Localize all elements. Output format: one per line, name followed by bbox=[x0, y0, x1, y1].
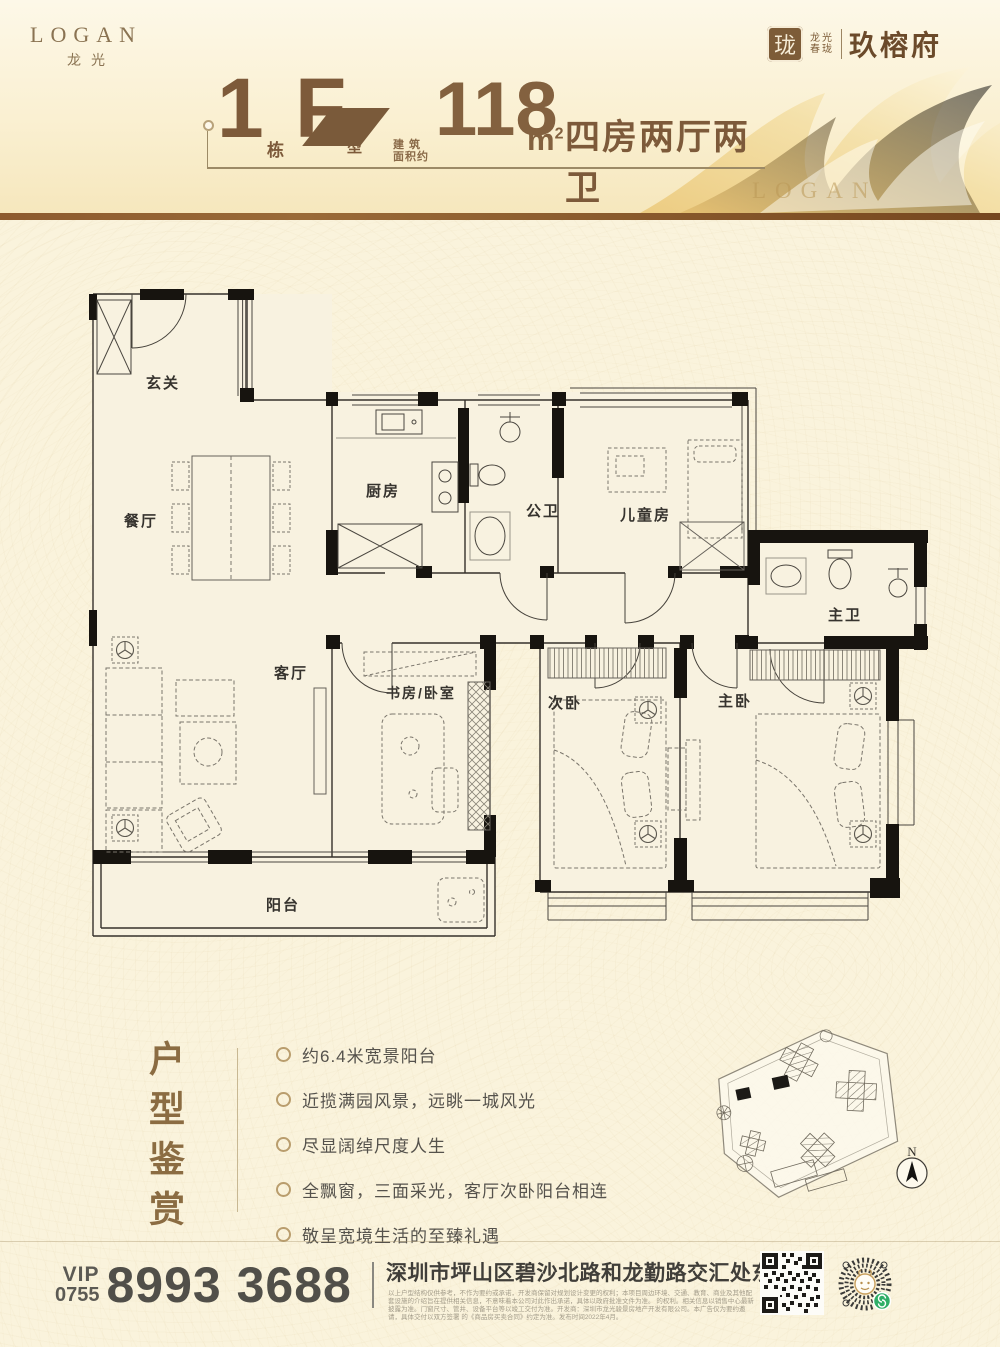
brand-seal-icon: 珑 bbox=[767, 26, 803, 62]
room-label: 公卫 bbox=[526, 503, 560, 520]
brand-mini-text: 龙光 春珑 bbox=[810, 33, 834, 55]
floor-fills bbox=[93, 294, 927, 936]
brand-divider bbox=[841, 29, 842, 59]
project-address: 深圳市坪山区碧沙北路和龙勤路交汇处东南角 bbox=[386, 1257, 816, 1287]
features-divider bbox=[237, 1048, 238, 1212]
phone-number: 8993 3688 bbox=[107, 1256, 352, 1314]
layout-spec: 四房两厅两卫 bbox=[565, 109, 775, 211]
logan-logo: LOGAN 龙光 bbox=[30, 22, 142, 70]
room-label: 儿童房 bbox=[619, 506, 671, 524]
ring-bullet-icon bbox=[276, 1137, 291, 1152]
feature-item: 近揽满园风景，远眺一城风光 bbox=[276, 1087, 608, 1112]
features-list: 约6.4米宽景阳台 近揽满园风景，远眺一城风光 尽显阔绰尺度人生 全飘窗，三面采… bbox=[276, 1042, 608, 1267]
room-label: 餐厅 bbox=[124, 512, 158, 530]
ring-bullet-icon bbox=[276, 1182, 291, 1197]
header-rule bbox=[0, 213, 1000, 220]
title-vline bbox=[207, 131, 208, 168]
footer-separator bbox=[0, 1241, 1000, 1242]
area-label: 建 筑 面积约 bbox=[393, 139, 429, 163]
area-unit: m2 bbox=[527, 122, 563, 158]
compass-n-label: N bbox=[907, 1144, 917, 1159]
features-section-title: 户型鉴赏 bbox=[138, 1040, 190, 1240]
miniprogram-badge-icon bbox=[874, 1293, 891, 1310]
compass-icon: N bbox=[897, 1144, 927, 1188]
logan-logo-en: LOGAN bbox=[30, 22, 142, 48]
room-label: 书房/卧室 bbox=[386, 685, 456, 701]
title-dot-icon bbox=[203, 120, 214, 131]
block-suffix: 栋 bbox=[267, 136, 284, 161]
room-label: 阳台 bbox=[266, 896, 300, 914]
project-brand: 珑 龙光 春珑 玖榕府 bbox=[767, 24, 942, 64]
room-label: 客厅 bbox=[273, 664, 308, 682]
footer-divider bbox=[372, 1262, 374, 1308]
room-label: 主卫 bbox=[828, 606, 862, 624]
room-label: 主卧 bbox=[718, 692, 752, 710]
room-label: 次卧 bbox=[548, 694, 582, 712]
block-number: 1 bbox=[217, 60, 264, 157]
ring-bullet-icon bbox=[276, 1227, 291, 1242]
qr-code-square bbox=[760, 1251, 824, 1315]
unit-title: 1 栋 F 户 型 建 筑 面积约 118 m2 四房两厅两卫 bbox=[205, 98, 775, 174]
legal-disclaimer: 以上户型结构仅供参考，不作为要约或承诺，开发商保留对规划设计变更的权利；本项目周… bbox=[388, 1290, 756, 1322]
siteplan-map: N bbox=[690, 1015, 950, 1215]
vip-phone: VIP 0755 8993 3688 bbox=[55, 1256, 352, 1314]
ring-bullet-icon bbox=[276, 1092, 291, 1107]
feature-item: 约6.4米宽景阳台 bbox=[276, 1042, 608, 1067]
feature-item: 敬呈宽境生活的至臻礼遇 bbox=[276, 1222, 608, 1247]
feature-item: 全飘窗，三面采光，客厅次卧阳台相连 bbox=[276, 1177, 608, 1202]
logan-logo-cn: 龙光 bbox=[30, 50, 142, 70]
ring-bullet-icon bbox=[276, 1047, 291, 1062]
qr-code-miniprogram-circle bbox=[836, 1255, 894, 1313]
title-underline bbox=[207, 167, 765, 169]
floorplan-drawing: 玄关 餐厅 厨房 公卫 儿童房 主卫 客厅 书房/卧室 次卧 主卧 阳台 bbox=[80, 280, 950, 970]
phone-prefix: VIP 0755 bbox=[55, 1264, 100, 1306]
room-label: 玄关 bbox=[146, 374, 180, 392]
room-label: 厨房 bbox=[366, 482, 400, 500]
poster-page: LOGAN LOGAN 龙光 珑 龙光 春珑 玖榕府 1 栋 F 户 型 建 筑… bbox=[0, 0, 1000, 1347]
project-name: 玖榕府 bbox=[849, 24, 942, 64]
feature-item: 尽显阔绰尺度人生 bbox=[276, 1132, 608, 1157]
